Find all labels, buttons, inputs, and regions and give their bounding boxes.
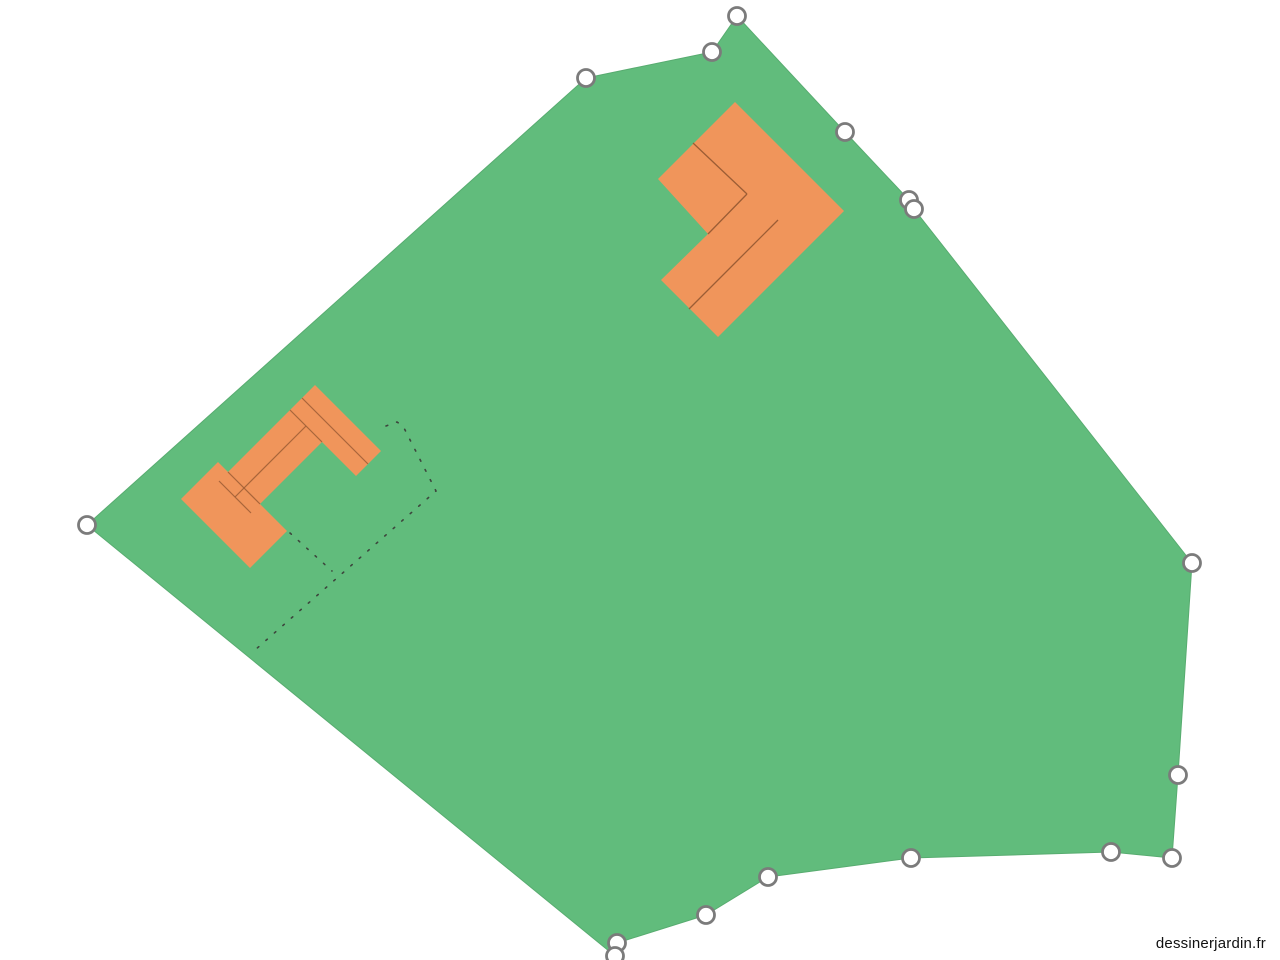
vertex-handle[interactable] [760, 869, 777, 886]
vertex-handle[interactable] [79, 517, 96, 534]
vertex-handle[interactable] [607, 948, 624, 960]
vertex-handle[interactable] [729, 8, 746, 25]
vertex-handle[interactable] [1103, 844, 1120, 861]
vertex-handle[interactable] [837, 124, 854, 141]
vertex-handle[interactable] [704, 44, 721, 61]
vertex-handle[interactable] [698, 907, 715, 924]
vertex-handle[interactable] [903, 850, 920, 867]
watermark: dessinerjardin.fr [1156, 935, 1266, 952]
vertex-handle[interactable] [1170, 767, 1187, 784]
garden-plan-svg[interactable] [0, 0, 1280, 960]
vertex-handle[interactable] [906, 201, 923, 218]
vertex-handle[interactable] [1184, 555, 1201, 572]
vertex-handle[interactable] [1164, 850, 1181, 867]
garden-plan-canvas: dessinerjardin.fr [0, 0, 1280, 960]
vertex-handle[interactable] [578, 70, 595, 87]
